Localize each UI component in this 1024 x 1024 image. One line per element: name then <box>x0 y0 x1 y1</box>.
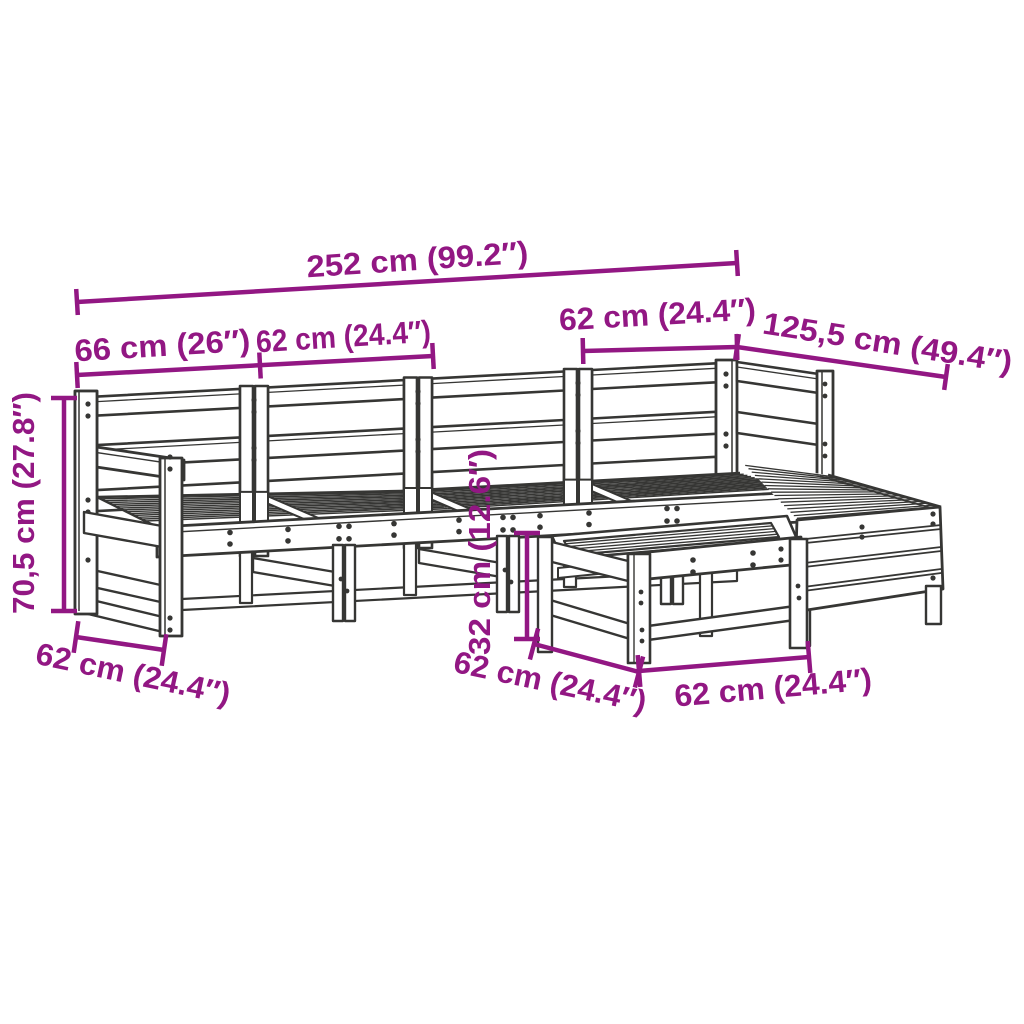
svg-text:32 cm (12.6″): 32 cm (12.6″) <box>462 449 497 655</box>
svg-text:62 cm (24.4″): 62 cm (24.4″) <box>451 644 650 719</box>
svg-text:62 cm (24.4″): 62 cm (24.4″) <box>673 661 873 713</box>
svg-text:70,5 cm (27.8″): 70,5 cm (27.8″) <box>6 392 41 614</box>
svg-text:62 cm (24.4″): 62 cm (24.4″) <box>255 314 432 360</box>
svg-text:66 cm (26″): 66 cm (26″) <box>73 323 251 369</box>
svg-text:62 cm (24.4″): 62 cm (24.4″) <box>558 292 757 338</box>
